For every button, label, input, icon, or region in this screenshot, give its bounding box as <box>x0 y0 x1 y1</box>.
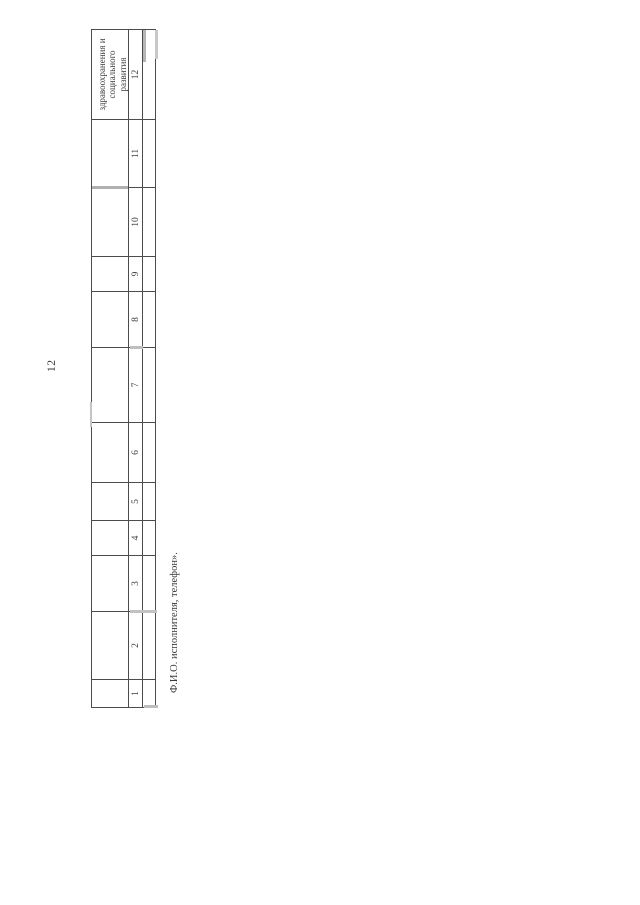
empty-data-cell <box>143 257 156 292</box>
header-line: развития <box>118 30 129 119</box>
column-number-cell: 3 <box>129 556 143 612</box>
column-number-cell: 1 <box>129 680 143 708</box>
header-cell <box>92 680 129 708</box>
empty-data-cell <box>143 556 156 612</box>
empty-data-cell <box>143 483 156 521</box>
column-number-cell: 12 <box>129 30 143 120</box>
executor-note: Ф.И.О. исполнителя, телефон». <box>169 552 180 693</box>
header-cell <box>92 612 129 680</box>
column-number-cell: 10 <box>129 188 143 257</box>
header-cell <box>92 423 129 483</box>
empty-data-cell <box>143 348 156 423</box>
report-table: здравоохранения и социального развития 1… <box>91 29 156 708</box>
document-page: 12 здравоохранения <box>0 0 640 905</box>
column-number-cell: 8 <box>129 292 143 348</box>
column-number-cell: 9 <box>129 257 143 292</box>
column-number-cell: 2 <box>129 612 143 680</box>
header-cell <box>92 483 129 521</box>
empty-data-cell <box>143 188 156 257</box>
header-cell <box>92 188 129 257</box>
scanned-sheet: 12 здравоохранения <box>0 0 640 905</box>
column-number-cell: 5 <box>129 483 143 521</box>
empty-data-cell <box>143 292 156 348</box>
empty-data-cell <box>143 120 156 188</box>
column-number-cell: 11 <box>129 120 143 188</box>
column-number-cell: 6 <box>129 423 143 483</box>
empty-data-cell <box>143 521 156 556</box>
page-number: 12 <box>46 360 58 373</box>
column-numbers-row: 1 2 3 4 5 6 7 8 9 10 11 12 <box>129 30 143 708</box>
header-cell <box>92 521 129 556</box>
header-cell <box>92 120 129 188</box>
header-cell <box>92 257 129 292</box>
column-number-cell: 4 <box>129 521 143 556</box>
header-line: социального <box>107 30 118 119</box>
empty-data-cell <box>143 423 156 483</box>
header-line: здравоохранения и <box>97 30 108 119</box>
empty-data-cell <box>143 680 156 708</box>
empty-data-row <box>143 30 156 708</box>
empty-data-cell <box>143 612 156 680</box>
empty-data-cell <box>143 30 156 120</box>
column-number-cell: 7 <box>129 348 143 423</box>
header-cell <box>92 556 129 612</box>
header-cell <box>92 348 129 423</box>
header-cell <box>92 292 129 348</box>
table-header-row: здравоохранения и социального развития <box>92 30 129 708</box>
header-cell-col12: здравоохранения и социального развития <box>92 30 129 120</box>
